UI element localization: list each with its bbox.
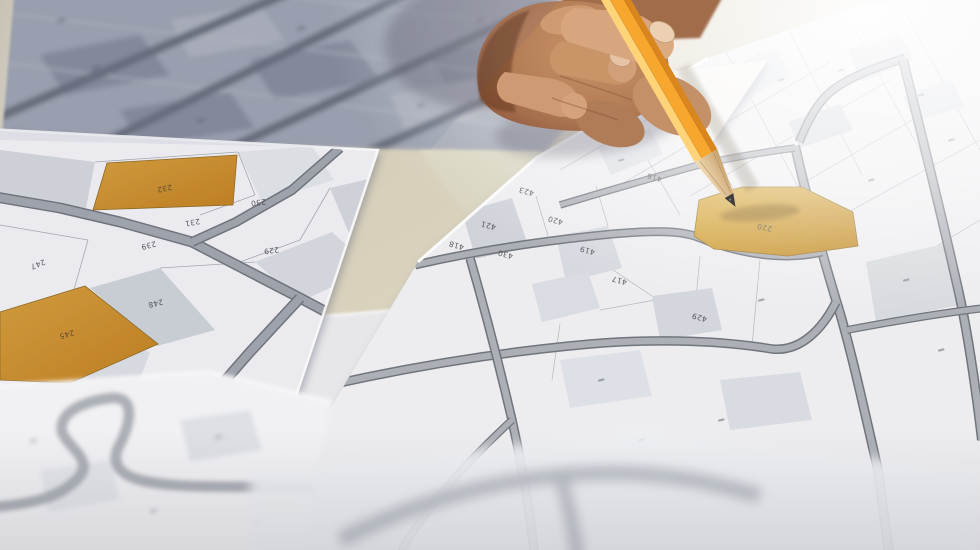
bottom-vignette [0,430,980,550]
photo-canvas: 232 245 247 239 231 230 229 228 233 248 [0,0,980,550]
cadastral-maps-photo: 232 245 247 239 231 230 229 228 233 248 [0,0,980,550]
